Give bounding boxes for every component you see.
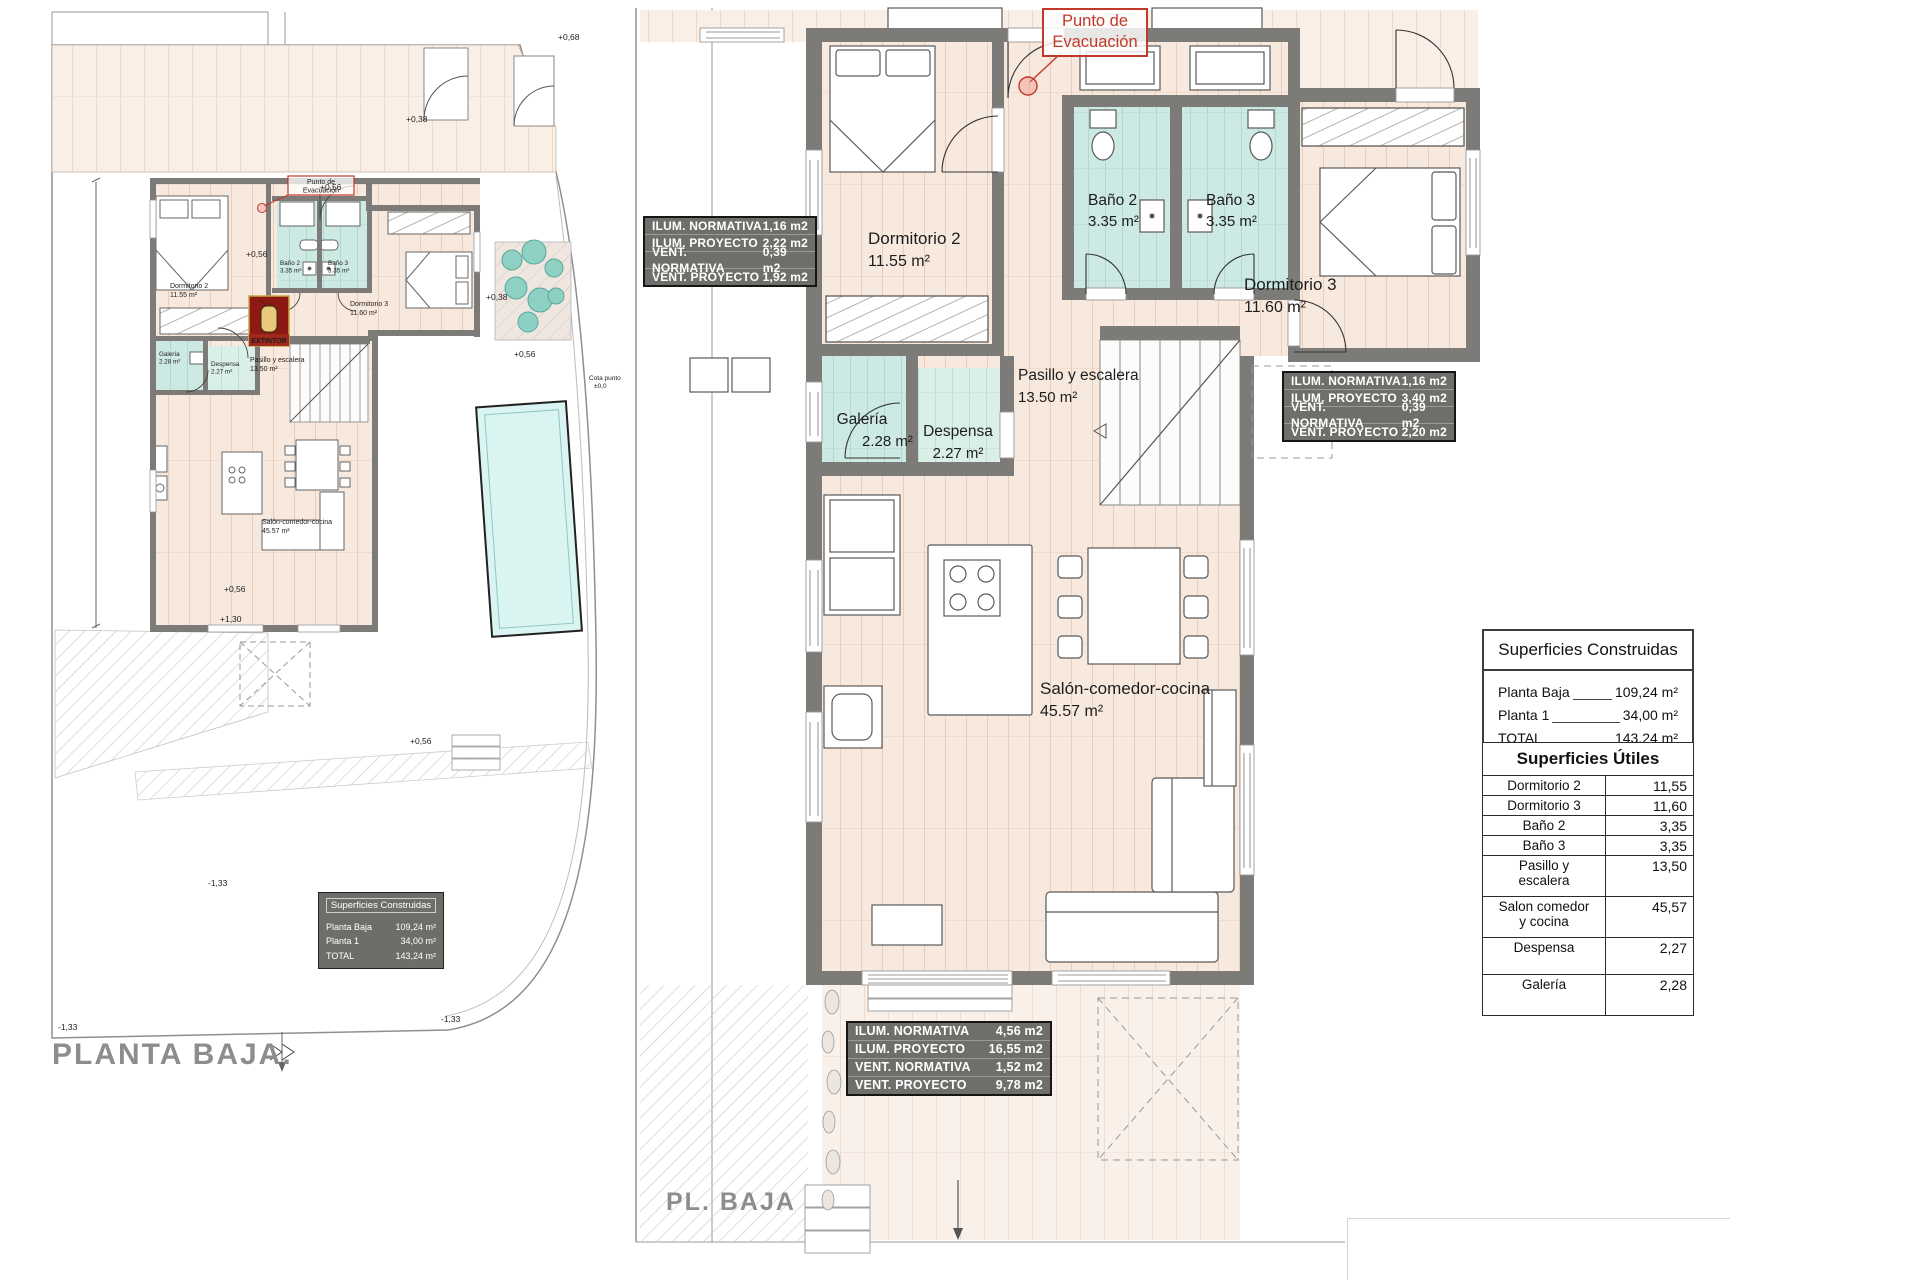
row-label: ILUM. NORMATIVA [1291, 373, 1401, 389]
right-plan: Dormitorio 2 11.55 m² Baño 2 3.35 m² Bañ… [636, 8, 1480, 1253]
row-label: ILUM. NORMATIVA [652, 218, 762, 234]
pool [476, 401, 582, 637]
mini-stairs [288, 338, 370, 422]
mini-superficies-box: Superficies Construidas Planta Baja109,2… [318, 892, 444, 969]
row-value: 13,50 [1606, 856, 1693, 896]
row-value: 1,52 m2 [996, 1059, 1043, 1076]
mini-label-pasillo: Pasillo y escalera [250, 357, 305, 364]
table-row: TOTAL143,24 m² [326, 949, 436, 963]
table-row: Planta 134,00 m² [326, 934, 436, 948]
elev-8: +0,56 [410, 736, 432, 746]
row-value: 1,16 m2 [763, 218, 808, 234]
elev-10: -1,33 [441, 1014, 461, 1024]
ilum-table-1: ILUM. NORMATIVA1,16 m2 ILUM. PROYECTO2,2… [643, 216, 817, 287]
area-despensa: 2.27 m² [933, 445, 984, 462]
area-bano2: 3.35 m² [1088, 213, 1139, 230]
row-label: Planta 1 [326, 934, 359, 948]
table-row: Pasillo y escalera13,50 [1483, 855, 1693, 896]
row-label: VENT. PROYECTO [855, 1077, 967, 1094]
row-value: 3,35 [1606, 836, 1693, 855]
row-value: 34,00 m² [400, 934, 436, 948]
table-row: ILUM. NORMATIVA1,16 m2 [1284, 373, 1454, 389]
table-row: Despensa2,27 [1483, 937, 1693, 974]
row-value: 34,00 m² [1623, 704, 1678, 727]
row-value: 16,55 m2 [989, 1041, 1043, 1058]
row-label: Baño 2 [1483, 816, 1606, 835]
row-label: ILUM. PROYECTO [855, 1041, 965, 1058]
ilum-table-3: ILUM. NORMATIVA4,56 m2 ILUM. PROYECTO16,… [846, 1021, 1052, 1096]
label-salon: Salón-comedor-cocina [1040, 679, 1211, 698]
area-salon: 45.57 m² [1040, 703, 1104, 720]
evacuation-point-callout: Punto de Evacuación [1042, 8, 1148, 57]
mini-box-title: Superficies Construidas [326, 898, 436, 913]
table-row: Dormitorio 311,60 [1483, 795, 1693, 815]
elev-3: +0,56 [246, 249, 268, 259]
table-row: Planta Baja109,24 m² [326, 920, 436, 934]
row-label: TOTAL [326, 949, 354, 963]
row-label: Planta Baja [326, 920, 372, 934]
table-row: ILUM. NORMATIVA1,16 m2 [645, 218, 815, 234]
row-label: VENT. NORMATIVA [855, 1059, 971, 1076]
elev-6: +0,56 [224, 584, 246, 594]
table-row: VENT. PROYECTO1,92 m2 [645, 268, 815, 285]
white-patch [1347, 1218, 1730, 1280]
upper-terrace-floor [52, 45, 556, 172]
rp-stairs [1094, 326, 1240, 505]
table-row: Dormitorio 211,55 [1483, 775, 1693, 795]
row-label: ILUM. NORMATIVA [855, 1023, 969, 1040]
mini-area-dorm3: 11.60 m² [350, 310, 378, 317]
elev-11: -1,33 [58, 1022, 78, 1032]
table-row: Planta Baja109,24 m² [1498, 681, 1678, 704]
mini-area-pasillo: 13.50 m² [250, 366, 278, 373]
table-row: Galería2,28 [1483, 974, 1693, 1015]
row-label: Dormitorio 2 [1483, 776, 1606, 795]
mini-area-bano2: 3.35 m² [280, 268, 301, 275]
table-row: VENT. NORMATIVA0,39 m2 [1284, 406, 1454, 423]
label-despensa: Despensa [923, 423, 993, 440]
row-value: 143,24 m² [395, 949, 436, 963]
elev-0: +0,68 [558, 32, 580, 42]
table-row: VENT. PROYECTO2,20 m2 [1284, 423, 1454, 440]
row-value: 9,78 m2 [996, 1077, 1043, 1094]
elev-9: -1,33 [208, 878, 228, 888]
mini-label-despensa: Despensa [211, 361, 240, 368]
mini-area-bano3: 3.35 m² [328, 268, 349, 275]
floor-plan-sheet: EXTINTOR Punto de Evacuación Dormitorio … [0, 0, 1920, 1280]
utiles-title: Superficies Útiles [1483, 743, 1693, 775]
row-label: Despensa [1483, 938, 1606, 974]
row-value: 4,56 m2 [996, 1023, 1043, 1040]
mini-label-bano2: Baño 2 [280, 260, 300, 267]
superficies-utiles-table: Superficies Útiles Dormitorio 211,55 Dor… [1482, 742, 1694, 1016]
label-bano2: Baño 2 [1088, 192, 1137, 209]
row-value: 3,35 [1606, 816, 1693, 835]
construidas-title: Superficies Construidas [1484, 631, 1692, 671]
extintor-label: EXTINTOR [251, 338, 286, 345]
mini-label-galeria: Galería [159, 351, 180, 358]
area-bano3: 3.35 m² [1206, 213, 1257, 230]
mini-area-galeria: 2.28 m² [159, 359, 180, 366]
row-value: 1,92 m2 [763, 269, 808, 285]
table-row: ILUM. NORMATIVA4,56 m2 [848, 1023, 1050, 1040]
label-galeria: Galería [837, 411, 888, 428]
row-value: 45,57 [1606, 897, 1693, 937]
hatch-areas [55, 630, 592, 800]
mini-area-dorm2: 11.55 m² [170, 292, 198, 299]
mini-label-dorm3: Dormitorio 3 [350, 301, 388, 308]
row-label: Baño 3 [1483, 836, 1606, 855]
elev-1: +0,38 [406, 114, 428, 124]
row-label: Galería [1483, 975, 1606, 1015]
elev-7: +1,30 [220, 614, 242, 624]
row-value: 109,24 m² [395, 920, 436, 934]
row-value: 2,20 m2 [1402, 424, 1447, 440]
area-dorm3: 11.60 m² [1244, 299, 1307, 316]
row-value: 11,55 [1606, 776, 1693, 795]
ilum-table-2: ILUM. NORMATIVA1,16 m2 ILUM. PROYECTO3,4… [1282, 371, 1456, 442]
evac-line2: Evacuación [1050, 32, 1140, 53]
elev-5: +0,56 [514, 349, 536, 359]
mini-label-bano3: Baño 3 [328, 260, 348, 267]
mini-area-salon: 45.57 m² [262, 528, 290, 535]
row-label: VENT. PROYECTO [1291, 424, 1398, 440]
mini-area-despensa: 2.27 m² [211, 369, 232, 376]
mini-steps [452, 735, 500, 770]
table-row: Baño 23,35 [1483, 815, 1693, 835]
mini-label-salon: Salón-comedor-cocina [262, 519, 332, 526]
row-label: Dormitorio 3 [1483, 796, 1606, 815]
table-row: Baño 33,35 [1483, 835, 1693, 855]
evac-line1: Punto de [1050, 11, 1140, 32]
label-pasillo: Pasillo y escalera [1018, 367, 1139, 384]
row-value: 109,24 m² [1615, 681, 1678, 704]
cota-line2: ±0,0 [594, 383, 607, 390]
table-row: VENT. NORMATIVA0,39 m2 [645, 251, 815, 268]
row-label: Planta Baja [1498, 681, 1570, 704]
mini-label-dorm2: Dormitorio 2 [170, 283, 208, 290]
label-bano3: Baño 3 [1206, 192, 1255, 209]
label-dorm2: Dormitorio 2 [868, 229, 961, 248]
row-label: Planta 1 [1498, 704, 1549, 727]
table-row: VENT. NORMATIVA1,52 m2 [848, 1058, 1050, 1076]
area-pasillo: 13.50 m² [1018, 389, 1077, 406]
area-dorm2: 11.55 m² [868, 253, 931, 270]
elev-4: +0,38 [486, 292, 508, 302]
row-value: 1,16 m2 [1402, 373, 1447, 389]
row-label: VENT. PROYECTO [652, 269, 759, 285]
row-value: 2,27 [1606, 938, 1693, 974]
row-value: 2,28 [1606, 975, 1693, 1015]
elev-2: +0,56 [320, 182, 342, 192]
table-row: VENT. PROYECTO9,78 m2 [848, 1076, 1050, 1094]
garden [495, 240, 571, 340]
area-galeria: 2.28 m² [862, 433, 913, 450]
row-value: 11,60 [1606, 796, 1693, 815]
table-row: ILUM. PROYECTO16,55 m2 [848, 1040, 1050, 1058]
cota-line1: Cota punto [589, 375, 621, 382]
extintor-sign: EXTINTOR [249, 296, 289, 346]
table-row: Salon comedor y cocina45,57 [1483, 896, 1693, 937]
right-plan-title: PL. BAJA [666, 1188, 796, 1217]
row-label: Salon comedor y cocina [1483, 897, 1606, 937]
row-label: Pasillo y escalera [1483, 856, 1606, 896]
left-plan-title: PLANTA BAJA. [52, 1038, 293, 1072]
table-row: Planta 134,00 m² [1498, 704, 1678, 727]
label-dorm3: Dormitorio 3 [1244, 275, 1337, 294]
